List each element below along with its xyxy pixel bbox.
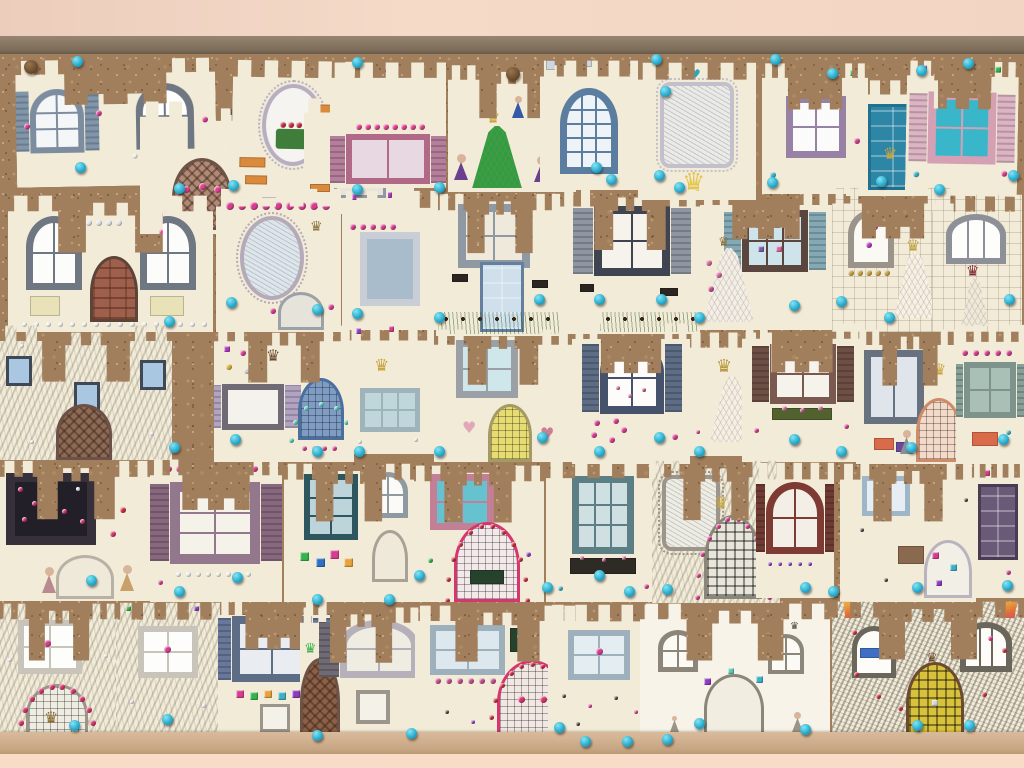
castle-artwork [540, 58, 638, 190]
castle-artwork [0, 455, 152, 601]
gem-sequin [202, 116, 208, 122]
push-pin [506, 67, 520, 81]
gem-sequin [94, 322, 99, 327]
window-cutout [658, 630, 698, 672]
wall-baseboard [0, 754, 1024, 768]
push-pin [694, 446, 705, 457]
crown-sticker: ♛ [304, 642, 317, 656]
castle-artwork [972, 458, 1024, 598]
window-glass [365, 393, 415, 427]
gem-sequin [772, 70, 778, 76]
mirror-frame [660, 82, 734, 168]
shutter-right [996, 95, 1015, 163]
gem-sequin [457, 678, 463, 684]
crown-sticker: ♛ [716, 358, 732, 376]
board-frame-top [0, 36, 1024, 56]
gem-sequin [48, 493, 52, 497]
gem-sequin [176, 572, 181, 577]
gem-sequin [776, 330, 782, 336]
gem-sequin [862, 230, 868, 236]
gem-sequin [310, 202, 318, 210]
window-cutout [742, 210, 808, 272]
sticker-art [470, 570, 504, 584]
gem-sequin [458, 542, 463, 547]
gem-sequin [242, 466, 248, 472]
push-pin [354, 446, 365, 457]
gem-sequin [334, 406, 339, 411]
window-glass [772, 638, 800, 670]
figure-head [457, 154, 466, 163]
push-pin [1008, 170, 1019, 181]
window-cutout [170, 482, 260, 564]
gem-sequin [116, 220, 122, 226]
gem-sequin [756, 222, 762, 228]
window-cutout [260, 704, 290, 732]
gem-sequin [776, 246, 782, 252]
sticker-art [580, 58, 592, 67]
gem-sequin [517, 634, 522, 639]
gem-sequin [262, 466, 268, 472]
gem-sequin [479, 678, 485, 684]
gem-sequin [236, 690, 244, 698]
castle-artwork: ♛ [932, 192, 1022, 332]
gem-sequin [728, 668, 734, 674]
shutter-right [825, 484, 840, 552]
gem-sequin [1002, 648, 1007, 653]
window-cutout [6, 473, 96, 545]
castle-artwork [572, 322, 690, 464]
person-figure [454, 154, 468, 180]
figure-head [45, 567, 54, 576]
window-glass [367, 239, 413, 299]
gem-sequin [818, 406, 823, 411]
shutter-right [809, 212, 826, 270]
push-pin [906, 442, 917, 453]
gem-sequin [158, 580, 163, 585]
gem-sequin [518, 696, 525, 703]
gem-sequin [707, 536, 712, 541]
push-pin [312, 304, 323, 315]
gem-sequin [500, 683, 505, 688]
person-figure [42, 567, 56, 593]
gem-sequin [860, 528, 864, 532]
window-glass [463, 347, 511, 391]
push-pin [624, 586, 635, 597]
crown-sticker: ♛ [906, 238, 920, 254]
window-glass [373, 477, 403, 513]
gem-sequin [602, 558, 606, 562]
window-cutout [430, 625, 505, 675]
gem-sequin [410, 124, 416, 130]
castle-artwork [0, 320, 172, 460]
gem-sequin [194, 606, 199, 611]
push-pin [916, 65, 927, 76]
window-cutout [18, 620, 82, 674]
castle-artwork [8, 190, 213, 332]
gem-sequin [106, 220, 112, 226]
gem-sequin [523, 577, 528, 582]
gem-sequin [950, 564, 957, 571]
crown-sticker: ♛ [883, 146, 897, 162]
door-art [704, 674, 764, 738]
gem-sequin [962, 350, 968, 356]
gem-sequin [120, 507, 126, 513]
shutter-left [14, 92, 29, 152]
gem-sequin [150, 432, 154, 436]
window-glass [663, 635, 693, 667]
gem-sequin [76, 487, 80, 491]
gem-sequin [296, 122, 302, 128]
window-cutout [29, 89, 84, 154]
gem-sequin [186, 572, 191, 577]
push-pin [660, 86, 671, 97]
window-cutout [770, 344, 836, 404]
gem-sequin [319, 402, 324, 407]
gem-sequin [936, 580, 942, 586]
gem-sequin [59, 684, 65, 690]
gown-art [892, 252, 938, 318]
gem-sequin [445, 710, 449, 714]
gem-sequin [984, 350, 990, 356]
gem-sequin [226, 572, 231, 577]
window-glass [228, 390, 278, 424]
gem-sequin [350, 224, 356, 230]
gem-sequin [130, 322, 135, 327]
shutter-left [573, 208, 593, 274]
gem-sequin [70, 322, 75, 327]
gem-sequin [562, 694, 566, 698]
gem-sequin [984, 470, 990, 476]
window-cutout [862, 476, 910, 516]
gem-sequin [86, 707, 92, 713]
push-pin [434, 446, 445, 457]
gem-sequin [642, 388, 646, 392]
crown-sticker: ♛ [718, 236, 730, 249]
gem-sequin [370, 224, 376, 230]
gem-sequin [224, 346, 230, 352]
push-pin [998, 434, 1009, 445]
gem-sequin [519, 664, 524, 669]
window-glass [240, 624, 304, 674]
shutter-right [261, 484, 284, 561]
gem-sequin [876, 694, 881, 699]
sticker-art [874, 438, 894, 450]
window-glass [436, 631, 499, 669]
door-art [488, 404, 532, 462]
gem-sequin [202, 322, 207, 327]
crown-sticker: ♛ [266, 348, 280, 364]
gem-sequin [46, 322, 51, 327]
gown-art [470, 126, 524, 188]
shutter-right [665, 344, 682, 412]
push-pin [789, 434, 800, 445]
castle-artwork: ♛ [832, 596, 1024, 740]
gem-sequin [736, 517, 741, 522]
window-glass [871, 357, 917, 417]
gem-sequin [244, 368, 250, 374]
push-pin [836, 296, 847, 307]
window-cutout [560, 88, 618, 174]
gem-sequin [596, 648, 603, 655]
figure-body [120, 573, 134, 591]
gem-sequin [754, 428, 759, 433]
window-glass [437, 481, 487, 523]
shutter-right [84, 90, 99, 150]
window-glass [466, 212, 522, 260]
board-frame-bottom [0, 732, 1024, 756]
gem-sequin [866, 242, 872, 248]
gem-sequin [380, 68, 386, 74]
push-pin [434, 312, 445, 323]
window-glass [347, 627, 411, 671]
window-cutout [768, 634, 804, 674]
castle-artwork [905, 59, 1019, 197]
gem-sequin [226, 364, 232, 370]
window-cutout [6, 356, 32, 386]
gem-sequin [808, 562, 812, 566]
gem-sequin [44, 640, 51, 647]
gem-sequin [58, 322, 63, 327]
push-pin [836, 446, 847, 457]
push-pin [75, 162, 86, 173]
gem-sequin [202, 704, 206, 708]
push-pin [384, 594, 395, 605]
push-pin [934, 184, 945, 195]
gem-sequin [968, 638, 973, 643]
gem-sequin [634, 710, 638, 714]
castle-artwork: ♛ [560, 184, 700, 334]
gem-sequin [30, 440, 34, 444]
window-cutout [964, 362, 1016, 418]
crown-sticker: ♛ [714, 495, 728, 511]
push-pin [828, 586, 839, 597]
push-pin [174, 586, 185, 597]
gem-sequin [293, 420, 298, 425]
gem-sequin [988, 636, 993, 641]
window-glass [966, 628, 1006, 666]
gem-sequin [79, 696, 85, 702]
push-pin [789, 300, 800, 311]
push-pin [800, 582, 811, 593]
figure-body [454, 162, 468, 180]
push-pin [312, 594, 323, 605]
crown-sticker: ♛ [790, 622, 799, 632]
window-glass [602, 214, 662, 268]
window-cutout [340, 620, 418, 678]
gem-sequin [788, 330, 794, 336]
gem-sequin [852, 630, 857, 635]
gem-sequin [344, 558, 353, 567]
gem-sequin [22, 707, 28, 713]
gem-sequin [774, 222, 780, 228]
push-pin [72, 56, 83, 67]
sticker-art [452, 274, 468, 282]
castle-artwork: ♥♥ [434, 324, 572, 462]
window-cutout [26, 216, 82, 290]
gown-art [960, 278, 990, 326]
push-pin [554, 722, 565, 733]
gem-sequin [126, 340, 130, 344]
push-pin [654, 432, 665, 443]
shutter-left [908, 93, 927, 161]
gem-sequin [850, 70, 856, 76]
window-glass [263, 707, 287, 729]
gem-sequin [250, 202, 258, 210]
door-art [978, 484, 1018, 560]
figure-head [794, 712, 801, 719]
window-glass [360, 694, 386, 720]
window-cutout [848, 210, 894, 268]
window-cutout [946, 214, 1006, 264]
push-pin [162, 714, 173, 725]
gem-sequin [392, 124, 398, 130]
gem-sequin [489, 715, 494, 720]
push-pin [534, 294, 545, 305]
gem-sequin [288, 122, 294, 128]
push-pin [606, 174, 617, 185]
window-cutout [594, 206, 670, 276]
door-art [916, 398, 962, 462]
gem-sequin [628, 394, 632, 398]
sticker-art [476, 62, 490, 72]
gem-sequin [778, 562, 782, 566]
push-pin [594, 294, 605, 305]
window-cutout [766, 482, 824, 554]
gem-sequin [616, 386, 620, 390]
gem-sequin [509, 671, 514, 676]
gem-sequin [390, 224, 396, 230]
gem-sequin [756, 676, 763, 683]
gem-sequin [49, 684, 55, 690]
gem-sequin [104, 654, 108, 658]
door-art [56, 404, 112, 460]
mirror-frame [240, 216, 304, 300]
gem-sequin [884, 578, 888, 582]
push-pin [594, 570, 605, 581]
shutter-left [205, 385, 221, 428]
push-pin [414, 570, 425, 581]
gem-sequin [695, 595, 700, 600]
gem-sequin [106, 322, 111, 327]
gem-sequin [716, 524, 721, 529]
gem-sequin [190, 322, 195, 327]
gem-sequin [278, 692, 286, 700]
gem-sequin [176, 466, 182, 472]
gem-sequin [214, 186, 221, 193]
crown-sticker: ♛ [486, 110, 500, 126]
push-pin [230, 434, 241, 445]
sticker-art [239, 157, 265, 167]
sticker-art [898, 546, 924, 564]
shutter-left [582, 344, 599, 412]
shutter-left [752, 346, 769, 402]
gem-sequin [622, 556, 626, 560]
gem-sequin [613, 418, 619, 424]
push-pin [232, 572, 243, 583]
person-figure [512, 96, 524, 118]
gem-sequin [857, 270, 863, 276]
gem-sequin [302, 446, 307, 451]
gem-sequin [358, 440, 362, 444]
window-glass [793, 103, 839, 151]
gem-sequin [982, 692, 987, 697]
gem-sequin [356, 124, 362, 130]
sticker-art [510, 628, 538, 652]
gem-sequin [86, 220, 92, 226]
gem-sequin [854, 672, 859, 677]
castle-artwork [840, 458, 976, 602]
gem-sequin [913, 171, 919, 177]
gem-sequin [511, 542, 516, 547]
classroom-wall [0, 0, 1024, 38]
gem-sequin [216, 572, 221, 577]
gem-sequin [435, 678, 441, 684]
gem-sequin [471, 720, 475, 724]
gem-sequin [576, 722, 580, 726]
castle-artwork: ♛ [300, 602, 422, 740]
castle-artwork: ♛ [700, 188, 832, 330]
window-cutout [458, 204, 530, 268]
door-art [924, 540, 972, 598]
window-glass [777, 351, 829, 397]
push-pin [24, 60, 38, 74]
gem-sequin [468, 678, 474, 684]
crown-sticker: ♛ [374, 358, 389, 375]
castle-artwork [412, 460, 544, 602]
window-cutout [356, 690, 390, 724]
figure-head [903, 430, 911, 438]
window-glass [24, 626, 76, 668]
window-glass [352, 140, 424, 178]
gem-sequin [365, 124, 371, 130]
gem-sequin [332, 446, 337, 451]
push-pin [352, 308, 363, 319]
gem-sequin [22, 517, 27, 522]
gem-sequin [898, 706, 903, 711]
gem-sequin [704, 678, 711, 685]
window-glass [36, 95, 79, 148]
window-cutout [368, 472, 408, 518]
heart-doodle: ♥ [462, 420, 476, 436]
gem-sequin [594, 420, 600, 426]
gem-sequin [932, 552, 939, 559]
gem-sequin [890, 632, 895, 637]
push-pin [662, 584, 673, 595]
gem-sequin [328, 304, 334, 310]
figure-body [42, 575, 56, 593]
window-glass [867, 481, 905, 511]
gem-sequin [644, 584, 649, 589]
door-art [90, 256, 138, 322]
door-art [454, 522, 520, 602]
gem-sequin [493, 698, 498, 703]
window-cutout [864, 350, 924, 424]
window-glass [143, 363, 163, 387]
gem-sequin [530, 662, 535, 667]
window-glass [579, 483, 627, 547]
gem-sequin [250, 692, 258, 700]
heart-doodle: ♥ [690, 68, 701, 80]
gem-sequin [270, 308, 276, 314]
gem-sequin [580, 556, 584, 560]
window-glass [310, 480, 352, 534]
shutter-right [671, 208, 691, 274]
push-pin [651, 54, 662, 65]
push-pin [434, 182, 445, 193]
castle-artwork [742, 322, 862, 462]
gem-sequin [609, 437, 615, 443]
gem-sequin [463, 644, 470, 651]
